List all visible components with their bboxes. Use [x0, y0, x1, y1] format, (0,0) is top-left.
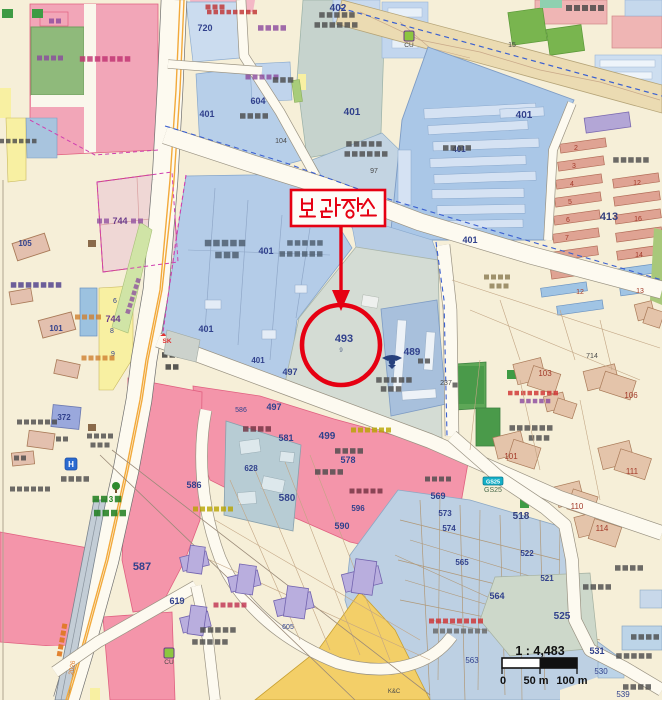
svg-text:101: 101: [504, 452, 518, 461]
svg-text:103: 103: [538, 369, 552, 378]
svg-text:237: 237: [440, 380, 452, 387]
svg-text:GS25: GS25: [484, 487, 502, 494]
svg-text:413: 413: [600, 211, 618, 223]
svg-text:720: 720: [197, 23, 212, 33]
svg-text:6: 6: [566, 217, 570, 224]
svg-text:6: 6: [113, 298, 117, 305]
svg-text:H: H: [68, 460, 74, 469]
svg-text:14: 14: [635, 252, 643, 259]
svg-text:581: 581: [278, 433, 293, 443]
svg-text:4: 4: [570, 181, 574, 188]
svg-text:564: 564: [489, 591, 504, 601]
svg-text:497: 497: [282, 367, 297, 377]
svg-text:GS25: GS25: [486, 480, 500, 486]
svg-text:518: 518: [513, 511, 530, 522]
svg-text:5: 5: [568, 199, 572, 206]
svg-text:714: 714: [586, 353, 598, 360]
svg-text:578: 578: [340, 455, 355, 465]
svg-text:15: 15: [508, 42, 516, 49]
svg-text:105: 105: [18, 239, 32, 248]
svg-text:2: 2: [574, 145, 578, 152]
svg-text:563: 563: [465, 656, 479, 665]
svg-text:CU: CU: [404, 42, 414, 49]
svg-text:7: 7: [565, 235, 569, 242]
svg-text:K&C: K&C: [388, 689, 401, 695]
svg-text:493: 493: [335, 333, 353, 345]
svg-text:401: 401: [462, 235, 477, 245]
svg-text:744: 744: [112, 216, 127, 226]
svg-text:16: 16: [634, 216, 642, 223]
svg-text:97: 97: [370, 168, 378, 175]
svg-text:401: 401: [344, 107, 361, 118]
svg-text:110: 110: [571, 502, 584, 511]
svg-text:489: 489: [404, 347, 421, 358]
svg-text:0: 0: [500, 675, 506, 687]
svg-text:3: 3: [109, 495, 114, 504]
svg-text:619: 619: [169, 596, 184, 606]
svg-text:13: 13: [636, 288, 644, 295]
svg-text:586: 586: [235, 407, 247, 414]
svg-text:525: 525: [554, 611, 571, 622]
svg-text:573: 573: [438, 509, 452, 518]
svg-text:604: 604: [250, 96, 265, 106]
svg-text:111: 111: [626, 467, 639, 476]
svg-text:587: 587: [133, 561, 151, 573]
svg-text:12: 12: [576, 289, 584, 296]
svg-text:531: 531: [589, 646, 604, 656]
svg-text:522: 522: [520, 549, 534, 558]
svg-text:586: 586: [186, 480, 201, 490]
svg-text:574: 574: [442, 524, 456, 533]
svg-text:50 m: 50 m: [523, 675, 548, 687]
svg-text:106: 106: [624, 391, 638, 400]
svg-text:628: 628: [244, 464, 258, 473]
svg-text:CU: CU: [164, 659, 174, 666]
svg-text:372: 372: [57, 413, 71, 422]
svg-text:12: 12: [633, 180, 641, 187]
svg-text:565: 565: [455, 558, 469, 567]
svg-text:401: 401: [516, 110, 533, 121]
svg-text:104: 104: [275, 138, 287, 145]
svg-text:590: 590: [334, 521, 349, 531]
svg-text:114: 114: [596, 524, 609, 533]
svg-text:605: 605: [282, 624, 294, 631]
svg-text:530: 530: [594, 667, 608, 676]
svg-text:401: 401: [198, 324, 213, 334]
svg-text:499: 499: [319, 431, 336, 442]
svg-text:8: 8: [110, 328, 114, 335]
svg-text:SK: SK: [162, 338, 171, 345]
svg-text:401: 401: [251, 356, 265, 365]
svg-text:100 m: 100 m: [556, 675, 587, 687]
svg-text:580: 580: [279, 493, 296, 504]
svg-text:497: 497: [266, 402, 281, 412]
svg-text:101: 101: [49, 324, 63, 333]
svg-text:539: 539: [616, 690, 630, 699]
svg-text:401: 401: [258, 246, 273, 256]
svg-text:3: 3: [572, 163, 576, 170]
svg-text:596: 596: [351, 504, 365, 513]
svg-text:401: 401: [199, 109, 214, 119]
svg-text:521: 521: [540, 574, 554, 583]
svg-text:1 : 4,483: 1 : 4,483: [515, 644, 564, 658]
svg-text:744: 744: [105, 314, 120, 324]
svg-text:569: 569: [430, 491, 445, 501]
